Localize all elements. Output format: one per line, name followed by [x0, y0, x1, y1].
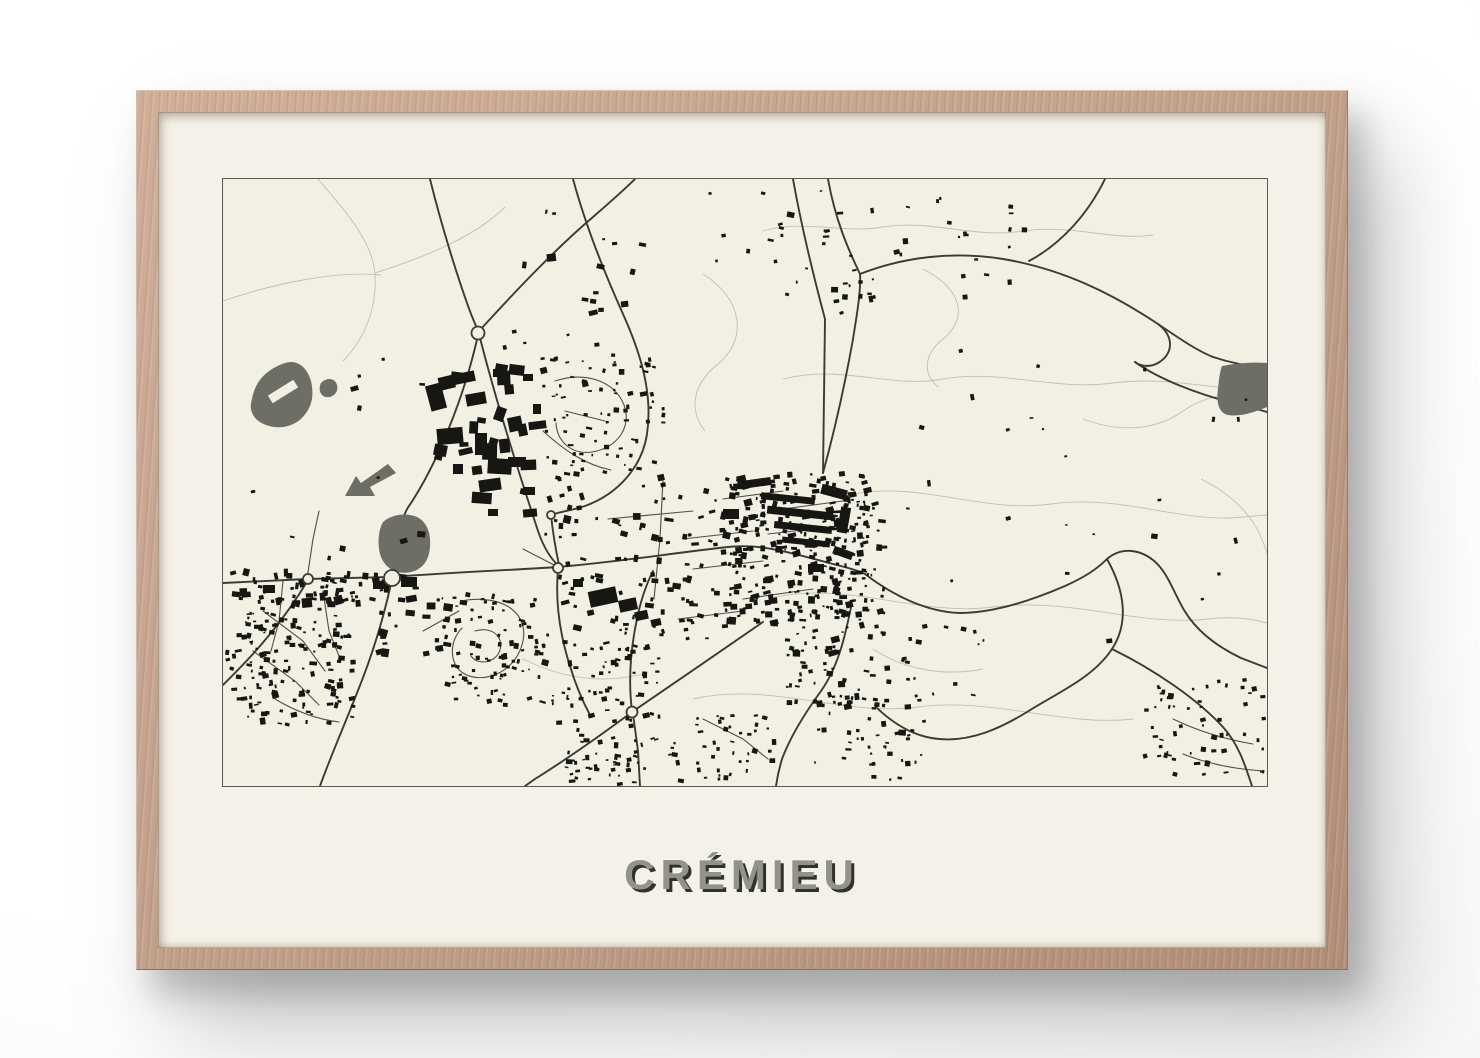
poster-matte: CRÉMIEU [158, 112, 1326, 948]
poster-title: CRÉMIEU [158, 854, 1326, 896]
poster-frame: CRÉMIEU [136, 90, 1348, 970]
city-map [222, 178, 1268, 787]
map-svg [223, 179, 1267, 786]
building-clusters [225, 190, 1266, 786]
minor-roads [253, 377, 1263, 771]
